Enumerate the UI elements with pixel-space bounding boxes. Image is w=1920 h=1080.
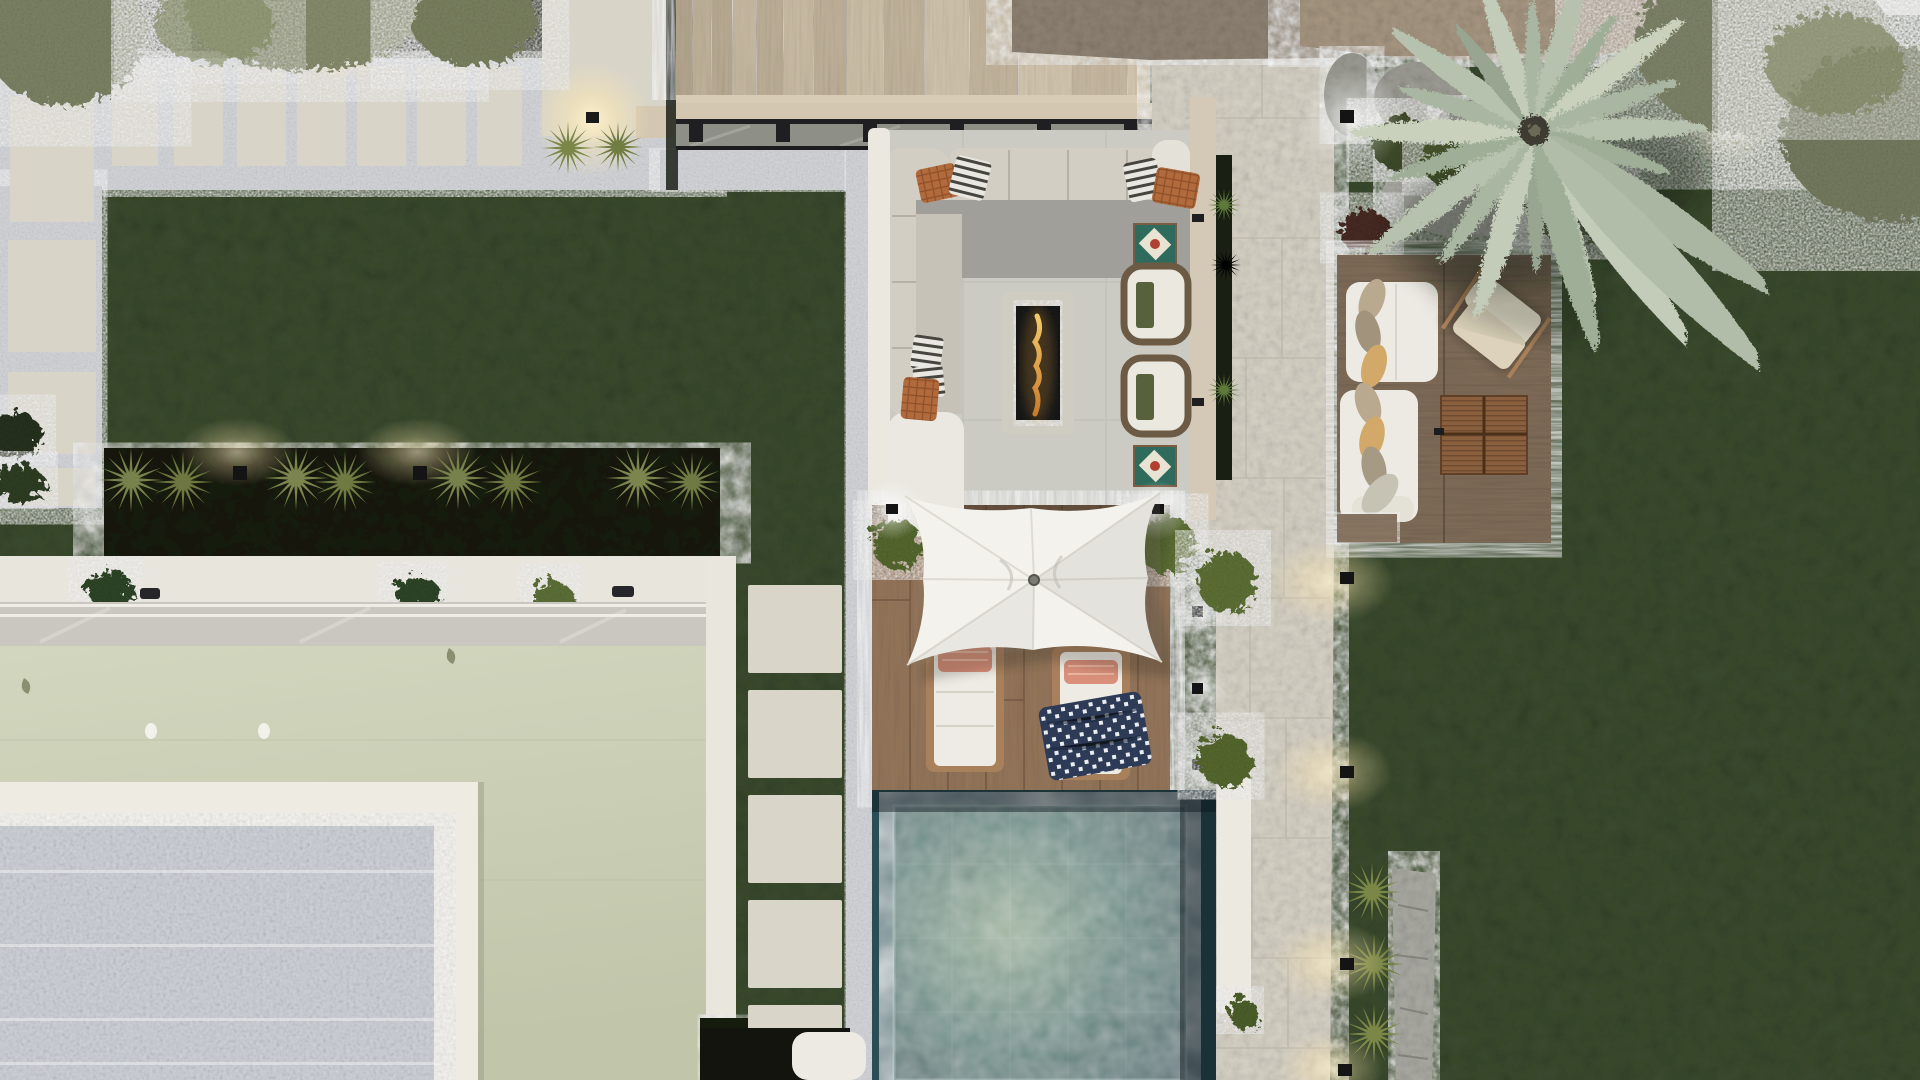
roof-vent [258, 723, 270, 739]
rail-line [0, 604, 736, 607]
terrace-border-left [868, 128, 890, 520]
slatted-coffee-table [1434, 396, 1527, 474]
scene-canvas [0, 0, 1920, 1080]
post-led [1192, 606, 1203, 617]
path-cube-light [1340, 766, 1354, 778]
small-shrub [1225, 995, 1255, 1025]
palm-trunk-top [1526, 122, 1538, 134]
pool-water [894, 806, 1186, 1080]
backyard-render [0, 0, 1920, 1080]
paver [237, 66, 286, 166]
monstera-plant [391, 572, 435, 604]
pool [872, 763, 1251, 1080]
planter-tuft [1207, 373, 1241, 407]
mosaic-center [1150, 461, 1160, 471]
boxwood-bush [1194, 729, 1248, 783]
olive-throw [1136, 282, 1154, 328]
stepping-stone [748, 795, 842, 883]
paver [417, 66, 466, 166]
pool-wall-shadow [1180, 790, 1216, 1080]
terrace-border-right [1190, 97, 1216, 520]
white-stool [792, 1032, 866, 1080]
pebble-roof [0, 826, 434, 1080]
light-wash [1272, 922, 1392, 1002]
stepping-stone [748, 585, 842, 673]
paver [477, 66, 522, 166]
roof-vent [145, 723, 157, 739]
wall-light [586, 112, 599, 123]
post-led [1192, 683, 1203, 694]
bottom-patio [700, 1028, 866, 1080]
patio-umbrella [905, 493, 1176, 681]
olive-canopy-highlight [1760, 10, 1900, 110]
pillow-rust [1151, 166, 1201, 209]
armchair [1124, 358, 1188, 434]
light-wash [1266, 540, 1394, 624]
stepping-stone [748, 690, 842, 778]
cube-light [233, 466, 247, 480]
paver [8, 240, 96, 352]
pool-side-wall [1217, 763, 1251, 1013]
umbrella-pole [1029, 575, 1039, 585]
light-wash [1272, 732, 1392, 812]
grass-plant [1343, 863, 1402, 922]
cube-light [413, 466, 427, 480]
pillow-rust [900, 377, 940, 422]
building [0, 418, 750, 1080]
post-anchor [1192, 214, 1204, 222]
planter-tuft [1207, 188, 1241, 222]
stepping-stone-column [748, 585, 842, 1080]
path-cube-light [1340, 958, 1354, 970]
pergola-steel-rail [676, 119, 1190, 124]
path-cube-light [1338, 1064, 1352, 1076]
olive-throw [1136, 374, 1154, 420]
deck-step [1337, 514, 1397, 542]
grass-tuft [541, 121, 594, 174]
parapet-shadow [478, 782, 484, 1080]
armchair [1124, 266, 1188, 342]
mosaic-center [1150, 239, 1160, 249]
fire-pit [1002, 292, 1074, 434]
rubble-band [1012, 0, 1334, 60]
stepping-stone [748, 900, 842, 988]
outdoor-chair-glimpse [612, 586, 634, 597]
rail-line [0, 614, 736, 617]
paver [174, 66, 223, 166]
path-cube-light [1340, 572, 1354, 584]
boxwood-bush [1193, 548, 1253, 608]
pergola-beam [676, 103, 1190, 119]
monstera-plant [82, 567, 130, 603]
paver [112, 66, 158, 166]
paver [357, 66, 406, 166]
parapet-right [432, 782, 478, 1080]
corner-paver [10, 96, 94, 222]
outdoor-chair-glimpse [140, 588, 160, 599]
planter-tuft [1211, 250, 1242, 281]
rock-wall-light [1340, 110, 1354, 123]
grass-tuft [593, 122, 643, 172]
stair-nosing [676, 95, 1150, 103]
building-side-wall [706, 556, 736, 1020]
deck-led-light [886, 504, 898, 514]
pool-deck-shadow [872, 790, 1216, 812]
parapet-top [0, 782, 478, 828]
post-anchor [1192, 398, 1204, 406]
table-leg [1434, 428, 1444, 435]
gravel-under-pergola [660, 150, 876, 190]
